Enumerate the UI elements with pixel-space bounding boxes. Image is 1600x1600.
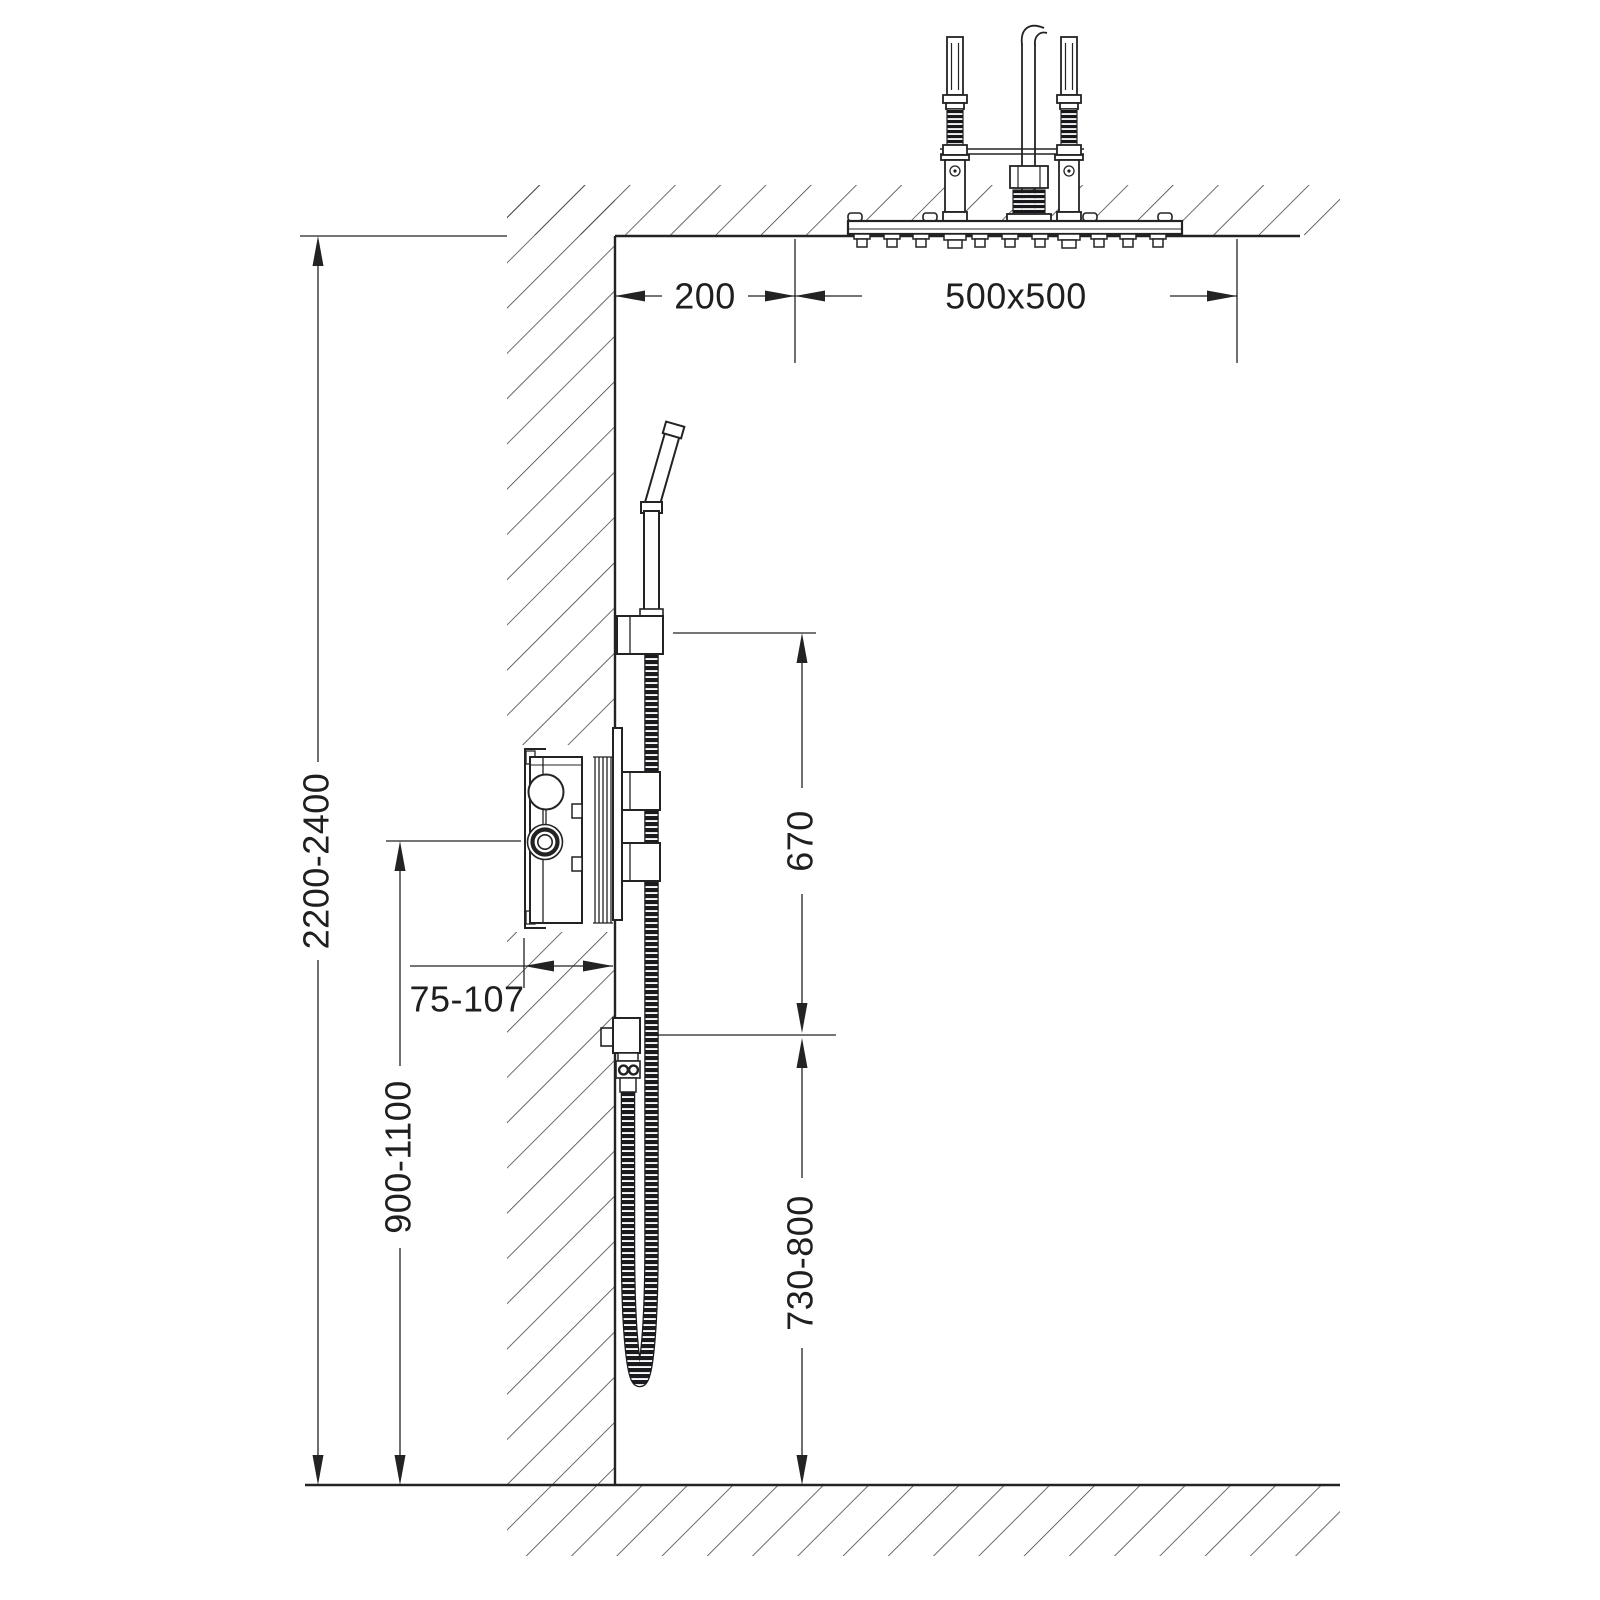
concealed-valve-box — [525, 728, 660, 928]
mounting-rod-right — [1055, 37, 1083, 222]
dim-outlet-to-floor-label: 730-800 — [780, 1195, 821, 1331]
hand-shower — [617, 422, 684, 654]
shower-holder — [617, 609, 663, 654]
wand-shaft — [644, 511, 659, 618]
shower-installation-drawing: 200 500x500 2200-2400 900-1100 75-107 67… — [0, 0, 1600, 1600]
dimension-arrows — [313, 236, 1238, 1485]
dim-valve-depth-label: 75-107 — [409, 979, 524, 1020]
dim-holder-to-outlet-label: 670 — [780, 810, 821, 872]
shower-hose — [628, 652, 652, 1380]
dim-head-size-label: 500x500 — [945, 276, 1087, 317]
mounting-rod-left — [941, 37, 969, 222]
valve-handle-top — [622, 772, 660, 810]
valve-handle-bottom — [622, 843, 660, 881]
dim-valve-height-label: 900-1100 — [378, 1080, 419, 1233]
structure-outlines — [305, 236, 1340, 1485]
hand-shower-head — [642, 422, 684, 511]
floor-section — [615, 1485, 1340, 1556]
valve-faceplate — [613, 728, 622, 920]
supply-pipe — [1007, 26, 1051, 221]
dim-wall-offset-label: 200 — [674, 276, 736, 317]
dim-room-height-label: 2200-2400 — [296, 773, 337, 950]
plaster-guard-rails — [593, 757, 613, 923]
dimension-lines — [300, 236, 1237, 1459]
dimension-labels: 200 500x500 2200-2400 900-1100 75-107 67… — [296, 276, 1087, 1331]
